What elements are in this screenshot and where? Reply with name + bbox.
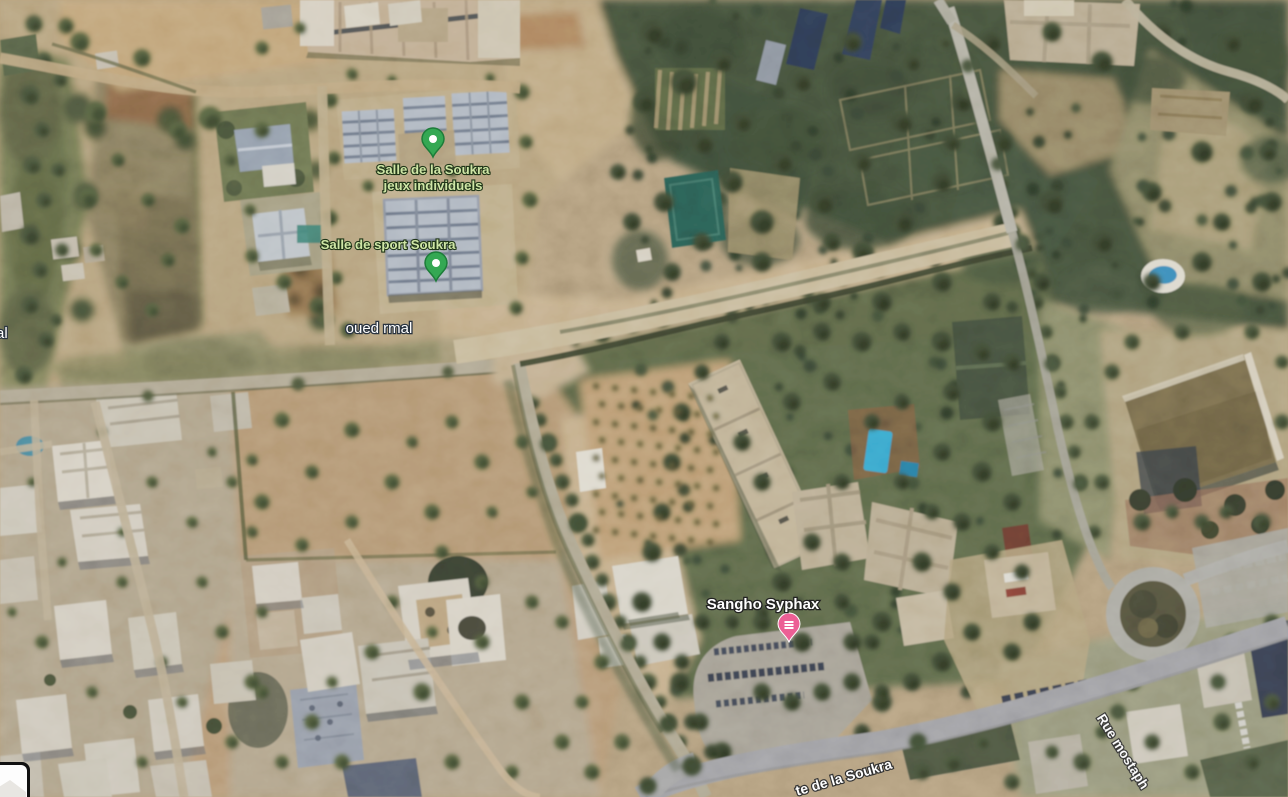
svg-text:oued rmal: oued rmal <box>346 320 413 337</box>
svg-text:jeux individuels: jeux individuels <box>383 178 483 193</box>
svg-text:Sangho Syphax: Sangho Syphax <box>707 596 820 613</box>
svg-text:al: al <box>0 325 8 342</box>
svg-text:Salle de la Soukra: Salle de la Soukra <box>377 162 491 177</box>
svg-text:Salle de sport Soukra: Salle de sport Soukra <box>321 237 457 252</box>
